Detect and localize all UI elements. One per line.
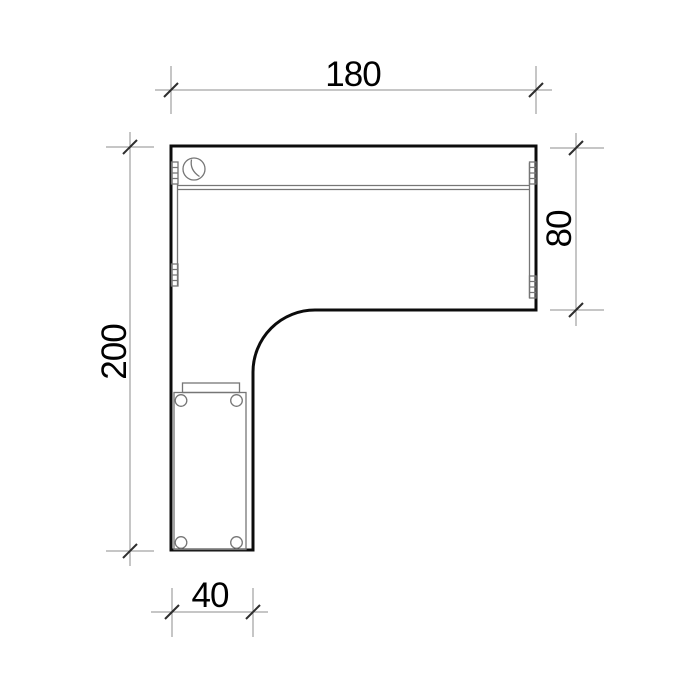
dimension-right-label: 80 bbox=[540, 210, 579, 247]
dimension-text-group: 180 200 80 40 bbox=[95, 55, 579, 615]
desk-top-outline bbox=[171, 146, 536, 550]
dimension-bottom-label: 40 bbox=[192, 576, 229, 615]
dimension-top-label: 180 bbox=[325, 55, 381, 94]
desk-outline-group bbox=[171, 146, 536, 550]
dimension-left-label: 200 bbox=[95, 324, 134, 380]
desk-plan-drawing: 180 200 80 40 bbox=[0, 0, 700, 700]
drawing-canvas: 180 200 80 40 bbox=[0, 0, 700, 700]
